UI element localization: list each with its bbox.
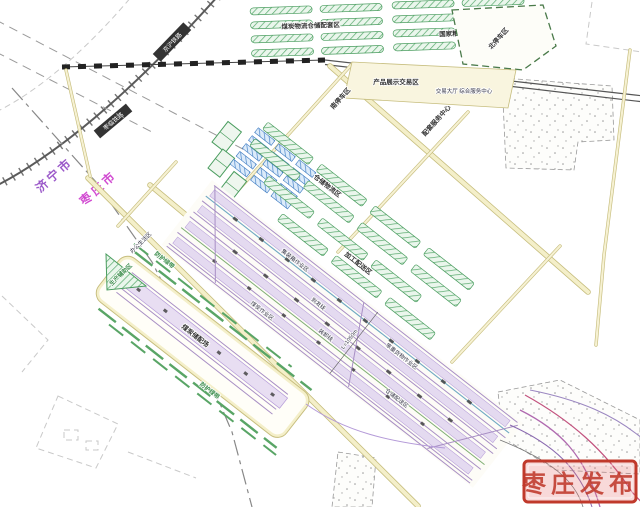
watermark-stamp: 枣庄发布 [521, 461, 638, 502]
trading-hall-label: 交易大厅 综合服务中心 [436, 87, 493, 95]
trading-strip: 产品展示交易区 交易大厅 综合服务中心 南停车区 配套服务中心 [328, 62, 516, 138]
warehouse-cluster-coal: 煤炭物流仓储配套区 [250, 3, 384, 57]
map-canvas: 京沪铁路 枣临铁路 济宁市 枣庄市 煤炭 [0, 0, 640, 507]
north-parking-area: 北停车区 [452, 5, 556, 70]
mainline-railway-label: 京沪铁路 [153, 22, 191, 61]
spur-railway-label: 枣临铁路 [94, 104, 133, 139]
planning-map: 京沪铁路 枣临铁路 济宁市 枣庄市 煤炭 [0, 0, 640, 507]
watermark-text: 枣庄发布 [521, 470, 638, 498]
product-display-label: 产品展示交易区 [373, 77, 419, 86]
blue-building-cluster [230, 128, 316, 209]
